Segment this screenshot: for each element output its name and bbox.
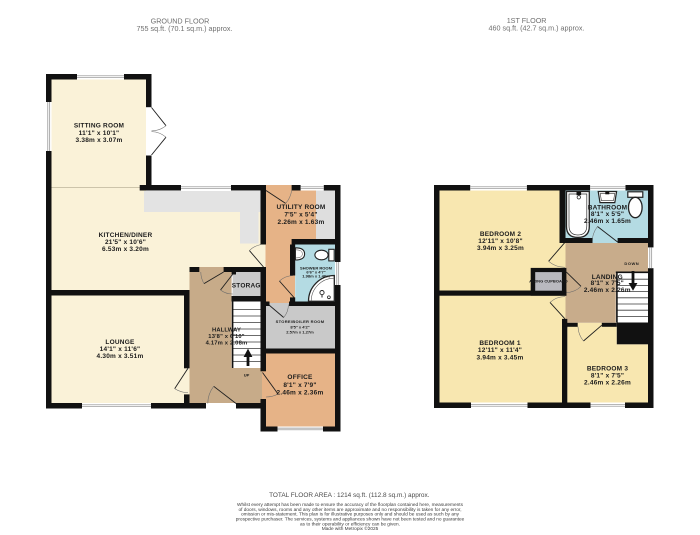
svg-text:2.57m x 1.27m: 2.57m x 1.27m xyxy=(286,330,314,335)
svg-text:4.30m x 3.51m: 4.30m x 3.51m xyxy=(97,353,144,360)
svg-text:13'8" x 6'10": 13'8" x 6'10" xyxy=(208,334,244,340)
svg-text:12'11" x 11'4": 12'11" x 11'4" xyxy=(478,347,522,354)
svg-text:755 sq.ft. (70.1 sq.m.) approx: 755 sq.ft. (70.1 sq.m.) approx. xyxy=(137,24,233,33)
svg-text:LOUNGE: LOUNGE xyxy=(105,339,135,346)
svg-text:3.38m x 3.07m: 3.38m x 3.07m xyxy=(76,137,123,144)
svg-text:2.46m x 1.65m: 2.46m x 1.65m xyxy=(584,218,631,225)
svg-text:BEDROOM 2: BEDROOM 2 xyxy=(480,231,522,238)
svg-text:Made with Metropix ©2025: Made with Metropix ©2025 xyxy=(322,525,379,532)
svg-text:2.46m x 2.36m: 2.46m x 2.36m xyxy=(277,390,324,397)
svg-text:2.46m x 2.26m: 2.46m x 2.26m xyxy=(584,287,631,294)
svg-text:HALLWAY: HALLWAY xyxy=(212,328,241,334)
svg-text:8'1" x 7'9": 8'1" x 7'9" xyxy=(283,382,316,389)
svg-text:8'1" x 5'5": 8'1" x 5'5" xyxy=(591,211,624,218)
svg-text:TOTAL FLOOR AREA : 1214 sq.ft.: TOTAL FLOOR AREA : 1214 sq.ft. (112.8 sq… xyxy=(269,492,430,499)
svg-text:DOWN: DOWN xyxy=(624,261,639,266)
svg-text:21'5" x 10'6": 21'5" x 10'6" xyxy=(105,239,146,246)
svg-text:460 sq.ft. (42.7 sq.m.) approx: 460 sq.ft. (42.7 sq.m.) approx. xyxy=(489,23,585,32)
svg-text:8'1" x 7'5": 8'1" x 7'5" xyxy=(591,373,624,380)
svg-text:UTILITY ROOM: UTILITY ROOM xyxy=(276,204,325,211)
svg-text:2.26m x 1.63m: 2.26m x 1.63m xyxy=(278,219,325,226)
svg-text:2.46m x 2.26m: 2.46m x 2.26m xyxy=(584,380,631,387)
svg-text:OFFICE: OFFICE xyxy=(287,374,313,381)
svg-text:6.53m x 3.20m: 6.53m x 3.20m xyxy=(102,246,149,253)
svg-text:STORE/BOILER ROOM: STORE/BOILER ROOM xyxy=(276,319,325,324)
svg-text:12'11" x 10'8": 12'11" x 10'8" xyxy=(478,238,523,245)
svg-text:BEDROOM 3: BEDROOM 3 xyxy=(587,366,629,373)
svg-text:1.98m x 1.40m: 1.98m x 1.40m xyxy=(302,274,330,279)
svg-text:8'5" x 4'2": 8'5" x 4'2" xyxy=(290,324,309,329)
svg-text:7'5" x 5'4": 7'5" x 5'4" xyxy=(284,212,317,219)
svg-text:SITTING ROOM: SITTING ROOM xyxy=(74,123,124,130)
svg-text:KITCHEN/DINER: KITCHEN/DINER xyxy=(99,232,153,239)
svg-text:14'1" x 11'6": 14'1" x 11'6" xyxy=(100,346,141,353)
svg-text:UP: UP xyxy=(244,373,250,378)
svg-text:3.94m x 3.25m: 3.94m x 3.25m xyxy=(477,245,524,252)
svg-text:AIRING CUPBOARD: AIRING CUPBOARD xyxy=(529,279,568,284)
svg-text:3.94m x 3.45m: 3.94m x 3.45m xyxy=(477,354,524,361)
svg-text:BEDROOM 1: BEDROOM 1 xyxy=(479,340,521,347)
svg-text:4.17m x 2.08m: 4.17m x 2.08m xyxy=(206,340,248,346)
